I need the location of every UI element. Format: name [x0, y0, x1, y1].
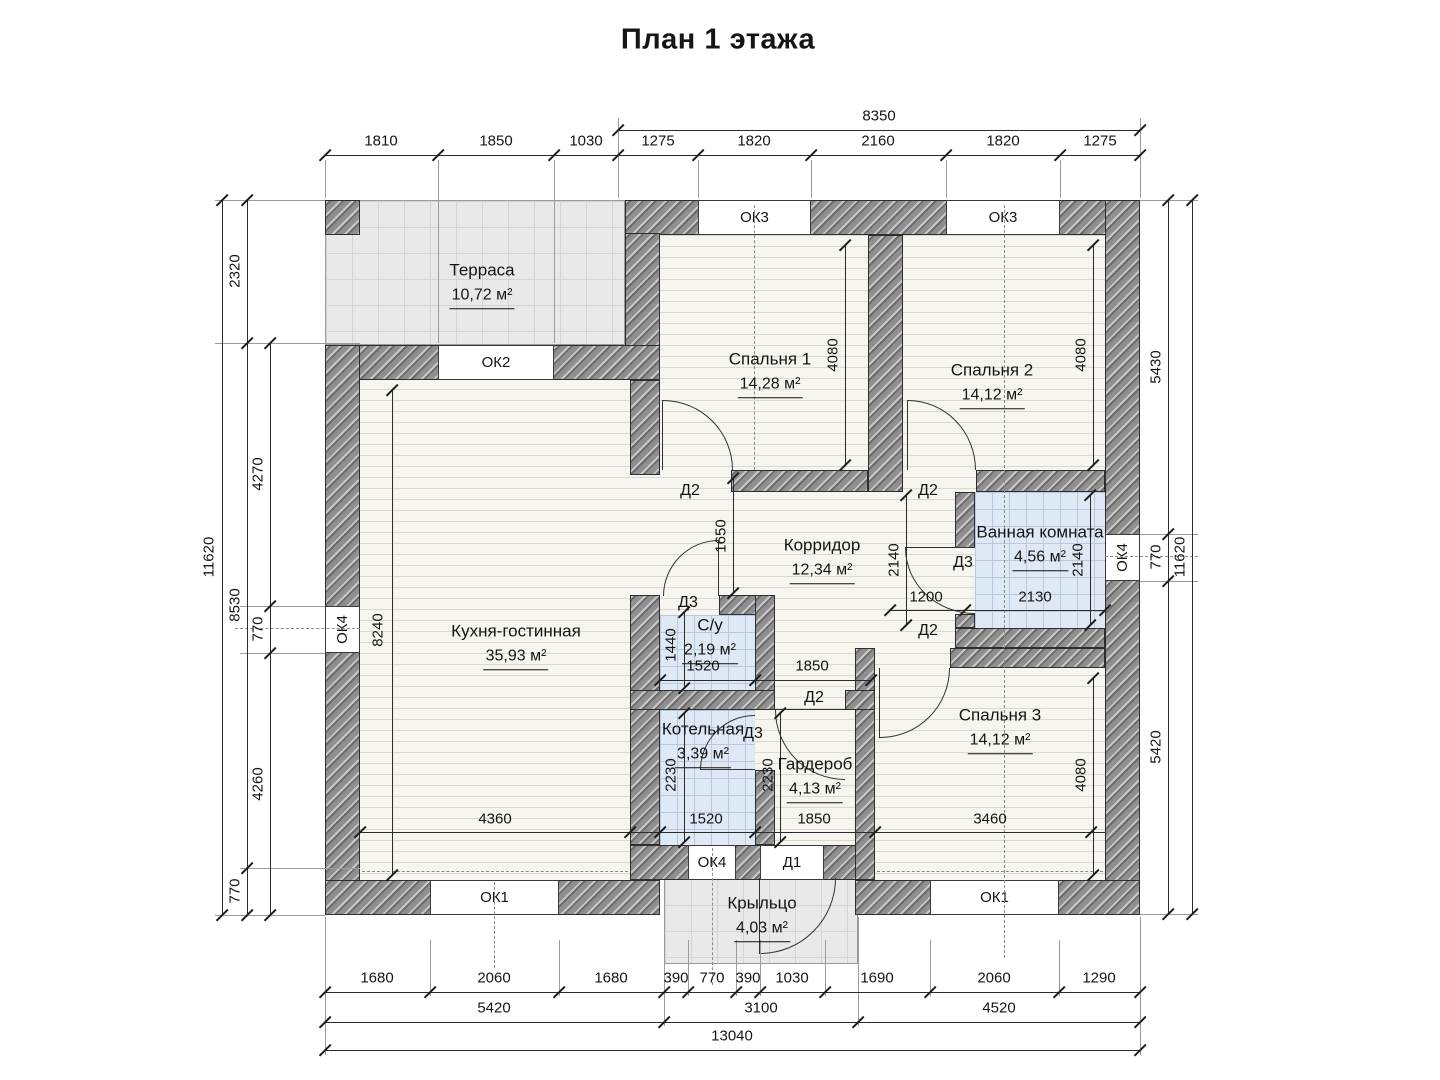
dim-right-inner-2: 5420	[1148, 730, 1165, 763]
dim-right-inner-1: 770	[1148, 544, 1165, 569]
dim-bottom1-9: 1290	[1082, 970, 1115, 987]
room-area: 2,19 м²	[682, 638, 738, 664]
dim-bottom1-1: 2060	[477, 970, 510, 987]
dim-top-7: 1275	[1083, 133, 1116, 150]
door-label-boiler: Д3	[743, 725, 763, 743]
dim-bedroom2-h: 4080	[1073, 338, 1090, 371]
axis-dash-bedroom1	[754, 205, 755, 470]
room-label-bedroom3: Спальня 3 14,12 м²	[959, 702, 1042, 754]
dim-bottom2-2: 4520	[982, 1000, 1015, 1017]
room-name: Спальня 3	[959, 702, 1042, 728]
axis-dash-ok1-left	[494, 882, 495, 968]
room-name: Спальня 2	[951, 357, 1034, 383]
room-name: Кухня-гостинная	[451, 618, 581, 644]
dim-bedroom3-h: 4080	[1073, 758, 1090, 791]
wall-bedroom3-left	[855, 648, 875, 880]
dim-left-inner-1: 770	[250, 616, 267, 641]
room-label-wardrobe: Гардероб 4,13 м²	[778, 751, 853, 803]
dim-left-outer: 11620	[201, 537, 218, 578]
room-label-boiler: Котельная 3,39 м²	[662, 716, 744, 768]
window-label: ОК4	[1114, 543, 1131, 572]
room-area: 10,72 м²	[450, 283, 515, 309]
dim-corridor-h: 2140	[886, 543, 903, 576]
room-label-kitchen: Кухня-гостинная 35,93 м²	[451, 618, 581, 670]
room-label-bathroom: Ванная комната 4,56 м²	[976, 519, 1103, 571]
dim-top-6: 1820	[986, 133, 1019, 150]
dim-bottom1-0: 1680	[360, 970, 393, 987]
wall-kitchen-mid-upper	[630, 380, 660, 475]
dim-bottom1-3: 390	[663, 970, 688, 987]
door-label-wc: Д3	[678, 594, 698, 612]
dim-top-2: 1030	[569, 133, 602, 150]
door-label-bedroom3: Д2	[918, 622, 938, 640]
floor-plan-canvas: План 1 этажа ОК3 ОК3 ОК2 ОК4 ОК4 ОК1 ОК1…	[0, 0, 1440, 1080]
window-ok1-bedroom3: ОК1	[930, 880, 1059, 915]
door-leaf-hall	[775, 709, 845, 710]
door-leaf-bedroom3	[879, 668, 880, 738]
wall-bedrooms-mid	[868, 235, 903, 492]
dim-top-4: 1820	[737, 133, 770, 150]
dim-bottom1-6: 1030	[775, 970, 808, 987]
room-label-bedroom1: Спальня 1 14,28 м²	[729, 346, 812, 398]
dim-bottom1-5: 390	[735, 970, 760, 987]
dim-right-inner-0: 5430	[1148, 350, 1165, 383]
dim-left-mid-0: 2320	[227, 254, 244, 287]
wall-bedroom3-top	[950, 648, 1105, 668]
dim-bottom2-0: 5420	[477, 1000, 510, 1017]
dim-top-3: 1275	[641, 133, 674, 150]
dim-boiler-w: 1520	[689, 811, 722, 828]
wall-bedroom1-bottom	[731, 470, 868, 492]
dim-top-0: 1810	[364, 133, 397, 150]
door-leaf-bedroom2	[907, 400, 908, 470]
door-label-bedroom2: Д2	[918, 482, 938, 500]
room-area: 14,12 м²	[968, 728, 1033, 754]
room-area: 3,39 м²	[675, 742, 731, 768]
dim-hall-w: 1850	[795, 658, 828, 675]
entrance-door-gap: Д1	[760, 845, 824, 880]
window-ok3-bedroom2: ОК3	[946, 200, 1060, 235]
room-name: Спальня 1	[729, 346, 812, 372]
room-label-wc: С/у 2,19 м²	[682, 612, 738, 664]
dim-bedroom1-h: 4080	[825, 338, 842, 371]
wall-hall-left	[630, 690, 775, 710]
dim-bath-w: 2130	[1018, 589, 1051, 606]
dim-opening-h: 1650	[713, 519, 730, 552]
dim-left-mid-1: 8530	[227, 588, 244, 621]
room-area: 4,56 м²	[1012, 545, 1068, 571]
door-label-bedroom1: Д2	[680, 482, 700, 500]
door-leaf-bathroom	[905, 547, 975, 548]
room-area: 4,13 м²	[787, 777, 843, 803]
dim-right-outer: 11620	[1172, 537, 1189, 578]
window-ok4-right: ОК4	[1105, 534, 1140, 581]
room-area: 14,12 м²	[960, 383, 1025, 409]
window-label: ОК2	[482, 354, 511, 371]
dim-wc-h: 1440	[663, 628, 680, 661]
door-label-bathroom: Д3	[953, 554, 973, 572]
door-label-hall: Д2	[804, 689, 824, 707]
dim-top-1: 1850	[479, 133, 512, 150]
wall-kitchen-mid-lower	[630, 595, 660, 845]
room-label-porch: Крыльцо 4,03 м²	[727, 890, 796, 942]
dim-bedroom3-w: 3460	[973, 811, 1006, 828]
dim-bottom-total: 13040	[711, 1028, 753, 1045]
window-label: ОК3	[989, 209, 1018, 226]
room-name: Крыльцо	[727, 890, 796, 916]
room-name: С/у	[682, 612, 738, 638]
dim-left-inner-0: 4270	[250, 457, 267, 490]
overhang-dash-kitchen	[362, 871, 628, 872]
axis-dash-porch	[712, 848, 713, 985]
page-title: План 1 этажа	[621, 24, 815, 57]
wall-bedroom2-bottom	[976, 470, 1105, 492]
room-name: Гардероб	[778, 751, 853, 777]
dim-bottom2-1: 3100	[744, 1000, 777, 1017]
dim-kitchen-h: 8240	[370, 613, 387, 646]
room-area: 4,03 м²	[734, 916, 790, 942]
window-ok2-kitchen: ОК2	[438, 345, 554, 380]
room-area: 12,34 м²	[790, 558, 855, 584]
axis-dash-bedroom2	[1004, 205, 1005, 958]
dim-left-inner-2: 4260	[250, 767, 267, 800]
dim-bottom1-2: 1680	[594, 970, 627, 987]
overhang-dash-bedroom3	[877, 871, 1103, 872]
room-area: 35,93 м²	[484, 644, 549, 670]
dim-left-mid-2: 770	[227, 878, 244, 903]
wall-porch	[630, 845, 875, 880]
wall-bath-bottom	[955, 628, 1105, 648]
dim-bottom1-4: 770	[699, 970, 724, 987]
dim-top-5: 2160	[861, 133, 894, 150]
dim-top-total: 8350	[862, 108, 895, 125]
dim-wardrobe-h: 2230	[760, 758, 777, 791]
dim-bottom1-8: 2060	[977, 970, 1010, 987]
room-name: Терраса	[449, 257, 514, 283]
room-label-bedroom2: Спальня 2 14,12 м²	[951, 357, 1034, 409]
room-label-corridor: Корридор 12,34 м²	[784, 532, 861, 584]
door-label: Д1	[783, 854, 802, 871]
wall-bath-left-lower	[955, 614, 975, 628]
dim-pass-w: 1200	[909, 589, 942, 606]
window-label: ОК4	[334, 615, 351, 644]
room-name: Котельная	[662, 716, 744, 742]
room-name: Корридор	[784, 532, 861, 558]
door-leaf-boiler	[700, 769, 755, 770]
room-name: Ванная комната	[976, 519, 1103, 545]
wall-corner-block	[325, 200, 360, 235]
dim-wardrobe-w: 1850	[797, 811, 830, 828]
dim-bottom1-7: 1690	[860, 970, 893, 987]
dim-kitchen-w: 4360	[478, 811, 511, 828]
wall-hall-right	[845, 690, 875, 710]
room-label-terrace: Терраса 10,72 м²	[449, 257, 514, 309]
window-ok4-left: ОК4	[325, 606, 360, 653]
wall-bath-left-upper	[955, 492, 975, 548]
room-area: 14,28 м²	[738, 372, 803, 398]
door-leaf-bedroom1	[662, 400, 663, 470]
